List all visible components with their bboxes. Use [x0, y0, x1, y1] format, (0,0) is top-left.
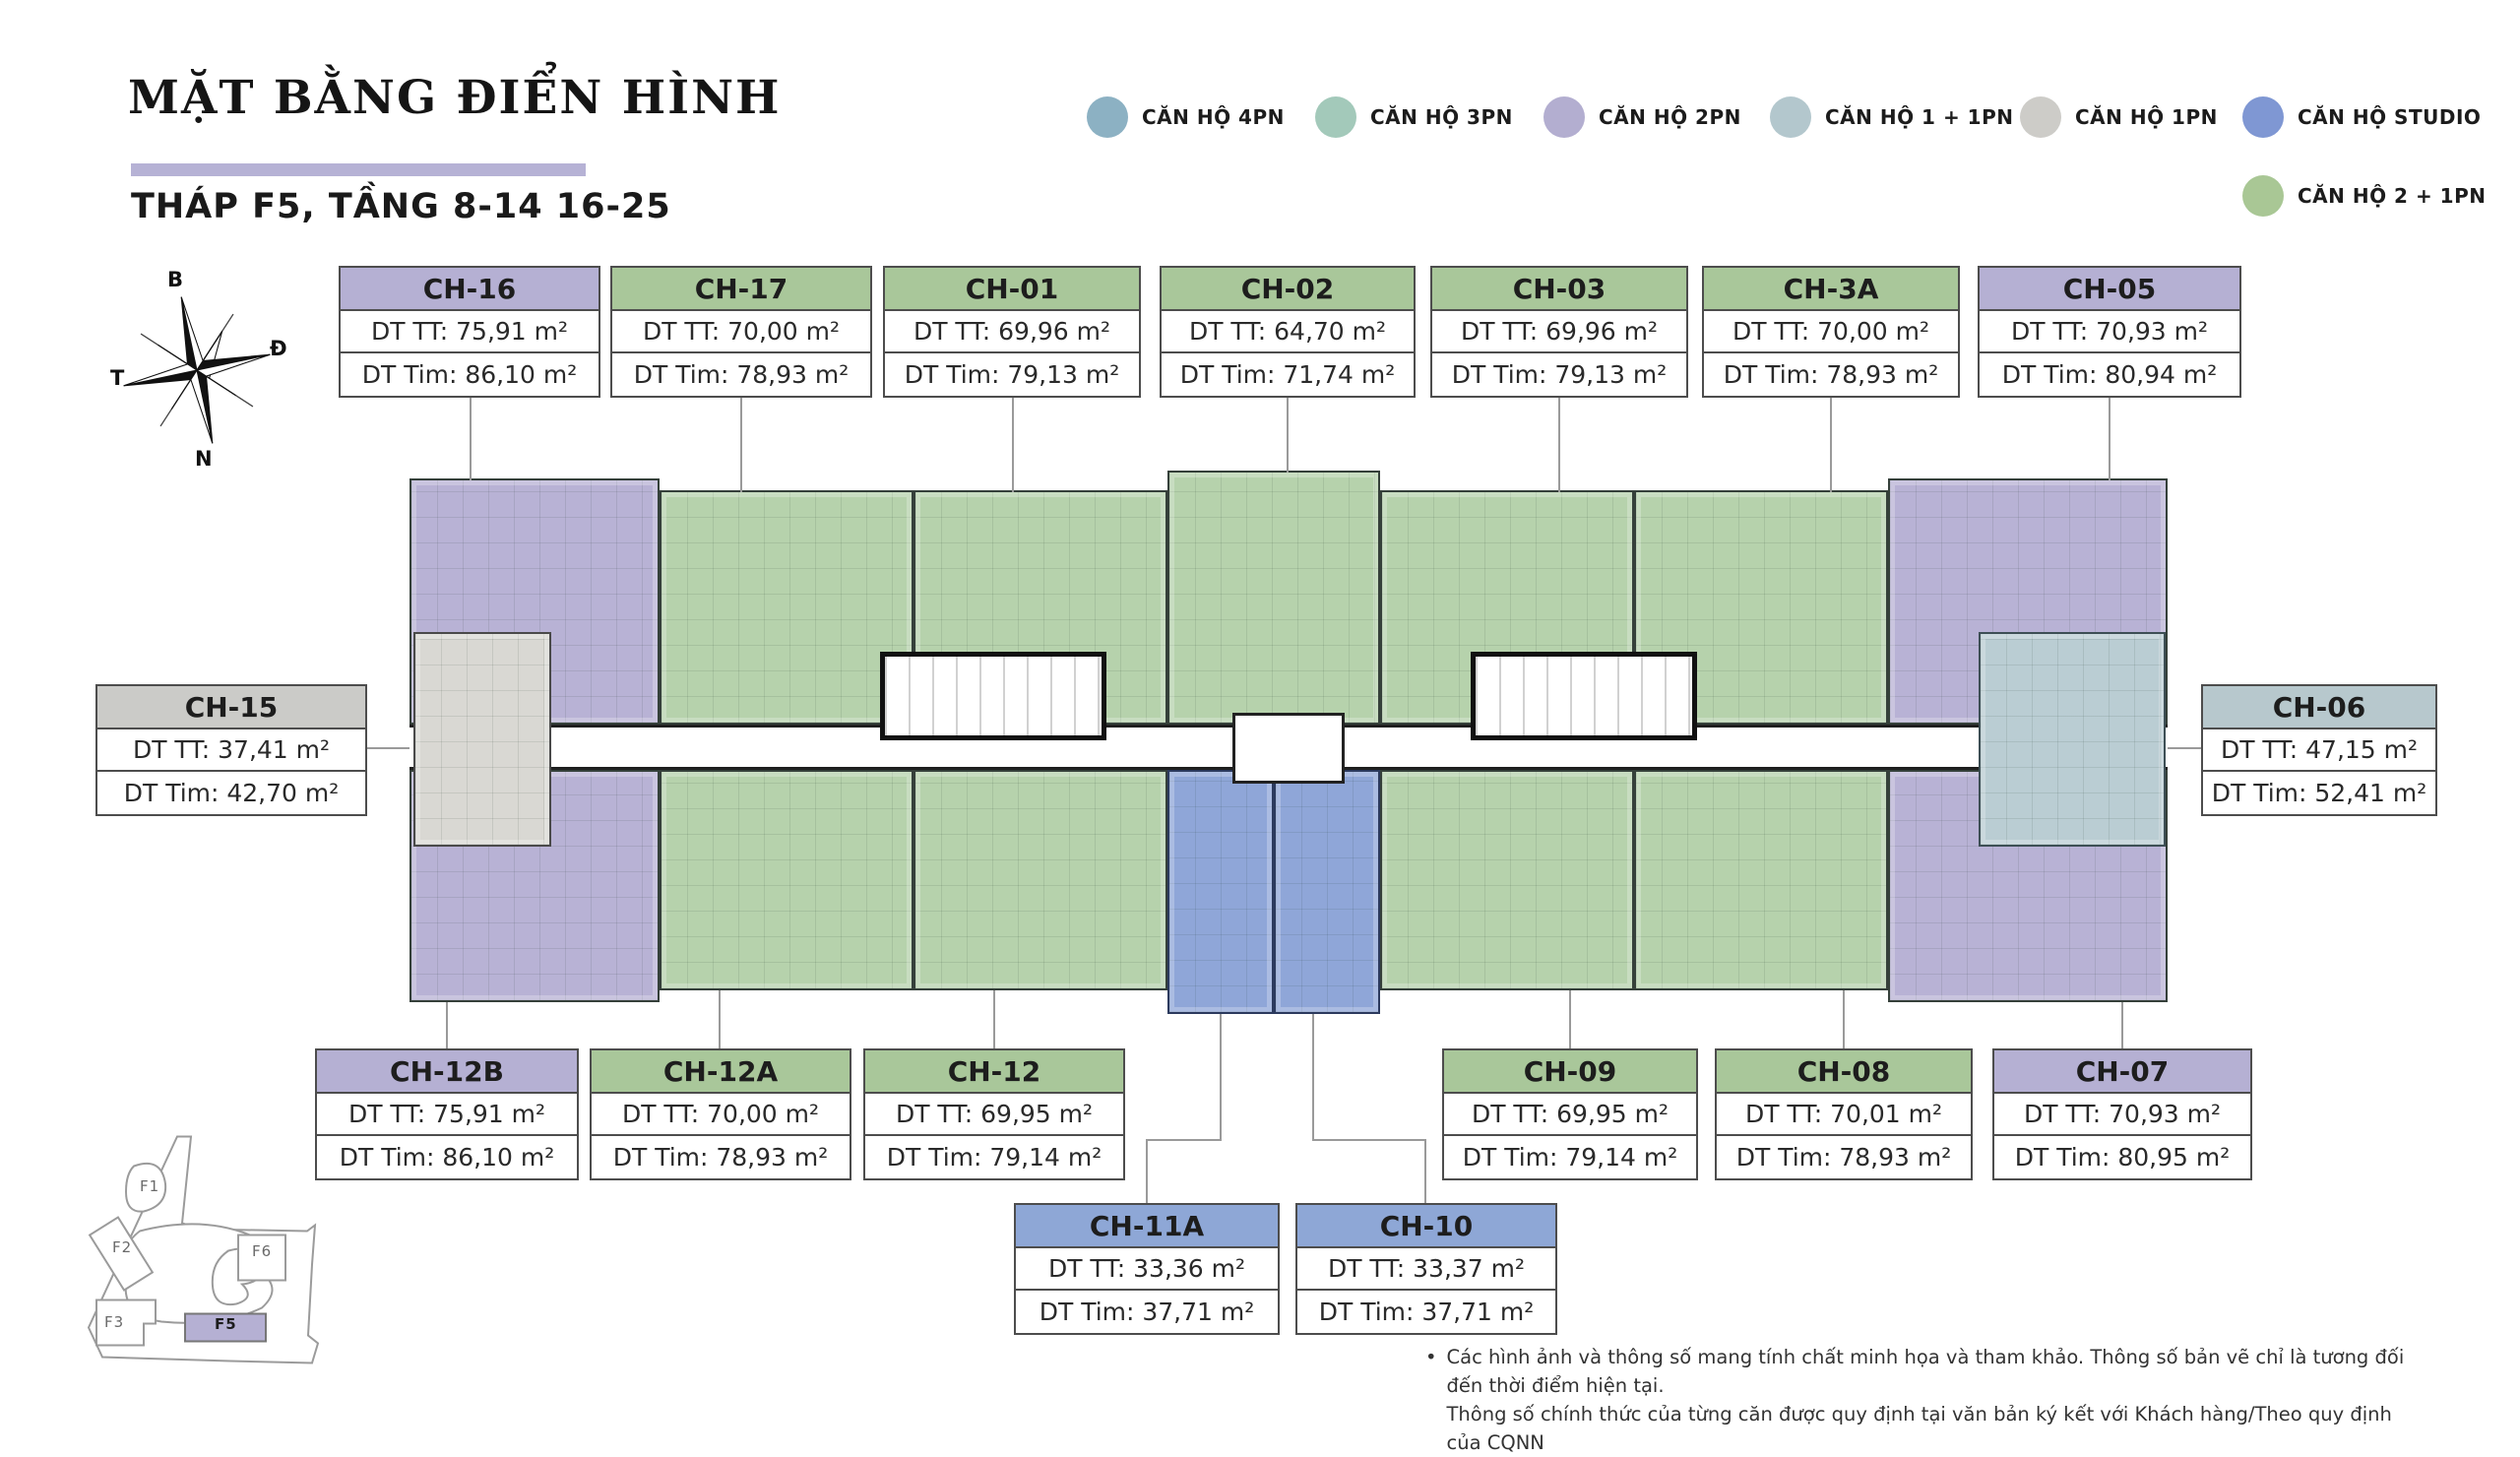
unit-card-ch-11a: CH-11A DT TT: 33,36 m² DT Tim: 37,71 m² — [1014, 1203, 1280, 1335]
plan-unit-ch-15 — [413, 632, 551, 847]
unit-area-tt: DT TT: 70,93 m² — [1994, 1094, 2250, 1136]
legend-label-2plus1pn: CĂN HỘ 2 + 1PN — [2298, 184, 2486, 208]
unit-card-ch-03: CH-03 DT TT: 69,96 m² DT Tim: 79,13 m² — [1430, 266, 1688, 398]
legend-label-2pn: CĂN HỘ 2PN — [1599, 105, 1741, 129]
compass-west-label: T — [110, 366, 124, 390]
legend-item-studio: CĂN HỘ STUDIO — [2242, 96, 2481, 138]
unit-card-ch-12a: CH-12A DT TT: 70,00 m² DT Tim: 78,93 m² — [590, 1048, 851, 1180]
unit-area-tim: DT Tim: 79,14 m² — [865, 1136, 1123, 1178]
plan-unit-ch-06 — [1979, 632, 2166, 847]
unit-area-tt: DT TT: 64,70 m² — [1162, 311, 1414, 353]
site-map: F1 F2 F3 F5 F6 — [83, 1132, 319, 1383]
unit-area-tim: DT Tim: 78,93 m² — [1704, 353, 1958, 396]
unit-area-tim: DT Tim: 79,13 m² — [885, 353, 1139, 396]
legend-dot-2pn — [1543, 96, 1585, 138]
plan-unit-ch-11a — [1167, 770, 1274, 1014]
unit-area-tim: DT Tim: 86,10 m² — [317, 1136, 577, 1178]
floorplan-infographic: { "header": { "title": "MẶT BẰNG ĐIỂN HÌ… — [0, 0, 2520, 1418]
site-plot-f1: F1 — [140, 1177, 159, 1195]
floor-plan — [408, 465, 2170, 1014]
plan-unit-ch-12 — [913, 770, 1167, 990]
unit-area-tim: DT Tim: 78,93 m² — [1717, 1136, 1971, 1178]
legend-item-1pn: CĂN HỘ 1PN — [2020, 96, 2218, 138]
compass-north-label: B — [167, 268, 183, 291]
compass-star-icon — [118, 291, 276, 449]
unit-area-tim: DT Tim: 79,14 m² — [1444, 1136, 1696, 1178]
unit-code: CH-06 — [2203, 686, 2435, 729]
unit-card-ch-05: CH-05 DT TT: 70,93 m² DT Tim: 80,94 m² — [1978, 266, 2241, 398]
plan-lobby-icon — [1232, 713, 1345, 784]
unit-area-tt: DT TT: 70,00 m² — [592, 1094, 850, 1136]
unit-code: CH-3A — [1704, 268, 1958, 311]
legend-label-studio: CĂN HỘ STUDIO — [2298, 105, 2481, 129]
unit-code: CH-03 — [1432, 268, 1686, 311]
site-plot-f5: F5 — [215, 1315, 237, 1333]
unit-area-tim: DT Tim: 80,94 m² — [1980, 353, 2239, 396]
legend-dot-4pn — [1087, 96, 1128, 138]
plan-unit-ch-17 — [660, 490, 913, 725]
compass-east-label: Đ — [270, 337, 287, 360]
compass-south-label: N — [195, 447, 213, 471]
page-title: MẶT BẰNG ĐIỂN HÌNH — [128, 71, 781, 125]
unit-card-ch-10: CH-10 DT TT: 33,37 m² DT Tim: 37,71 m² — [1295, 1203, 1557, 1335]
title-accent-bar — [131, 163, 586, 176]
site-map-outline — [83, 1132, 319, 1383]
site-plot-f3: F3 — [104, 1313, 124, 1331]
site-plot-f6: F6 — [252, 1242, 272, 1260]
legend-item-2plus1pn: CĂN HỘ 2 + 1PN — [2242, 175, 2486, 217]
legend-dot-studio — [2242, 96, 2284, 138]
unit-area-tim: DT Tim: 37,71 m² — [1016, 1291, 1278, 1333]
unit-code: CH-12A — [592, 1050, 850, 1094]
legend-item-2pn: CĂN HỘ 2PN — [1543, 96, 1741, 138]
unit-area-tt: DT TT: 70,00 m² — [1704, 311, 1958, 353]
unit-card-ch-12: CH-12 DT TT: 69,95 m² DT Tim: 79,14 m² — [863, 1048, 1125, 1180]
unit-card-ch-06: CH-06 DT TT: 47,15 m² DT Tim: 52,41 m² — [2201, 684, 2437, 816]
plan-unit-ch-09 — [1380, 770, 1634, 990]
unit-area-tt: DT TT: 69,96 m² — [1432, 311, 1686, 353]
unit-area-tt: DT TT: 70,93 m² — [1980, 311, 2239, 353]
plan-core-right-icon — [1471, 652, 1697, 740]
unit-card-ch-08: CH-08 DT TT: 70,01 m² DT Tim: 78,93 m² — [1715, 1048, 1973, 1180]
legend-dot-1pn — [2020, 96, 2061, 138]
unit-code: CH-17 — [612, 268, 870, 311]
unit-area-tt: DT TT: 37,41 m² — [97, 729, 365, 772]
legend-label-3pn: CĂN HỘ 3PN — [1370, 105, 1513, 129]
unit-area-tt: DT TT: 75,91 m² — [341, 311, 598, 353]
unit-code: CH-05 — [1980, 268, 2239, 311]
plan-core-left-icon — [880, 652, 1106, 740]
unit-code: CH-12 — [865, 1050, 1123, 1094]
unit-area-tt: DT TT: 69,96 m² — [885, 311, 1139, 353]
unit-area-tim: DT Tim: 71,74 m² — [1162, 353, 1414, 396]
disclaimer-line-1: Các hình ảnh và thông số mang tính chất … — [1447, 1346, 2405, 1397]
unit-area-tim: DT Tim: 78,93 m² — [612, 353, 870, 396]
unit-card-ch-15: CH-15 DT TT: 37,41 m² DT Tim: 42,70 m² — [95, 684, 367, 816]
site-plot-f2: F2 — [112, 1238, 132, 1256]
unit-code: CH-09 — [1444, 1050, 1696, 1094]
unit-area-tt: DT TT: 75,91 m² — [317, 1094, 577, 1136]
legend-label-1pn: CĂN HỘ 1PN — [2075, 105, 2218, 129]
legend-dot-2plus1pn — [2242, 175, 2284, 217]
unit-area-tt: DT TT: 69,95 m² — [865, 1094, 1123, 1136]
plan-unit-ch-08 — [1634, 770, 1888, 990]
plan-unit-ch-10 — [1274, 770, 1380, 1014]
legend-item-4pn: CĂN HỘ 4PN — [1087, 96, 1285, 138]
unit-card-ch-01: CH-01 DT TT: 69,96 m² DT Tim: 79,13 m² — [883, 266, 1141, 398]
disclaimer-text: Các hình ảnh và thông số mang tính chất … — [1447, 1343, 2429, 1457]
disclaimer-line-2: Thông số chính thức của từng căn được qu… — [1447, 1403, 2392, 1454]
unit-code: CH-10 — [1297, 1205, 1555, 1248]
unit-area-tim: DT Tim: 79,13 m² — [1432, 353, 1686, 396]
unit-card-ch-17: CH-17 DT TT: 70,00 m² DT Tim: 78,93 m² — [610, 266, 872, 398]
unit-card-ch-07: CH-07 DT TT: 70,93 m² DT Tim: 80,95 m² — [1992, 1048, 2252, 1180]
unit-area-tim: DT Tim: 78,93 m² — [592, 1136, 850, 1178]
unit-code: CH-08 — [1717, 1050, 1971, 1094]
legend-label-4pn: CĂN HỘ 4PN — [1142, 105, 1285, 129]
unit-area-tim: DT Tim: 86,10 m² — [341, 353, 598, 396]
plan-unit-ch-12a — [660, 770, 913, 990]
unit-area-tim: DT Tim: 80,95 m² — [1994, 1136, 2250, 1178]
legend-dot-1plus1pn — [1770, 96, 1811, 138]
disclaimer-bullet: • — [1425, 1343, 1437, 1457]
unit-code: CH-02 — [1162, 268, 1414, 311]
plan-unit-ch-02 — [1167, 471, 1380, 725]
unit-code: CH-16 — [341, 268, 598, 311]
unit-code: CH-11A — [1016, 1205, 1278, 1248]
unit-area-tt: DT TT: 33,36 m² — [1016, 1248, 1278, 1291]
unit-area-tim: DT Tim: 37,71 m² — [1297, 1291, 1555, 1333]
unit-area-tim: DT Tim: 42,70 m² — [97, 772, 365, 814]
unit-area-tt: DT TT: 70,00 m² — [612, 311, 870, 353]
legend-label-1plus1pn: CĂN HỘ 1 + 1PN — [1825, 105, 2013, 129]
unit-card-ch-12b: CH-12B DT TT: 75,91 m² DT Tim: 86,10 m² — [315, 1048, 579, 1180]
unit-code: CH-15 — [97, 686, 365, 729]
unit-area-tt: DT TT: 70,01 m² — [1717, 1094, 1971, 1136]
disclaimer: • Các hình ảnh và thông số mang tính chấ… — [1425, 1343, 2429, 1457]
unit-code: CH-01 — [885, 268, 1139, 311]
unit-card-ch-02: CH-02 DT TT: 64,70 m² DT Tim: 71,74 m² — [1160, 266, 1416, 398]
unit-area-tt: DT TT: 47,15 m² — [2203, 729, 2435, 772]
unit-code: CH-12B — [317, 1050, 577, 1094]
unit-card-ch-16: CH-16 DT TT: 75,91 m² DT Tim: 86,10 m² — [339, 266, 600, 398]
legend-dot-3pn — [1315, 96, 1356, 138]
unit-area-tt: DT TT: 33,37 m² — [1297, 1248, 1555, 1291]
unit-card-ch-3a: CH-3A DT TT: 70,00 m² DT Tim: 78,93 m² — [1702, 266, 1960, 398]
legend-item-1plus1pn: CĂN HỘ 1 + 1PN — [1770, 96, 2013, 138]
compass-rose: B Đ T N — [110, 268, 287, 475]
unit-area-tim: DT Tim: 52,41 m² — [2203, 772, 2435, 814]
unit-area-tt: DT TT: 69,95 m² — [1444, 1094, 1696, 1136]
unit-card-ch-09: CH-09 DT TT: 69,95 m² DT Tim: 79,14 m² — [1442, 1048, 1698, 1180]
page-subtitle: THÁP F5, TẦNG 8-14 16-25 — [131, 187, 671, 226]
legend-item-3pn: CĂN HỘ 3PN — [1315, 96, 1513, 138]
unit-code: CH-07 — [1994, 1050, 2250, 1094]
